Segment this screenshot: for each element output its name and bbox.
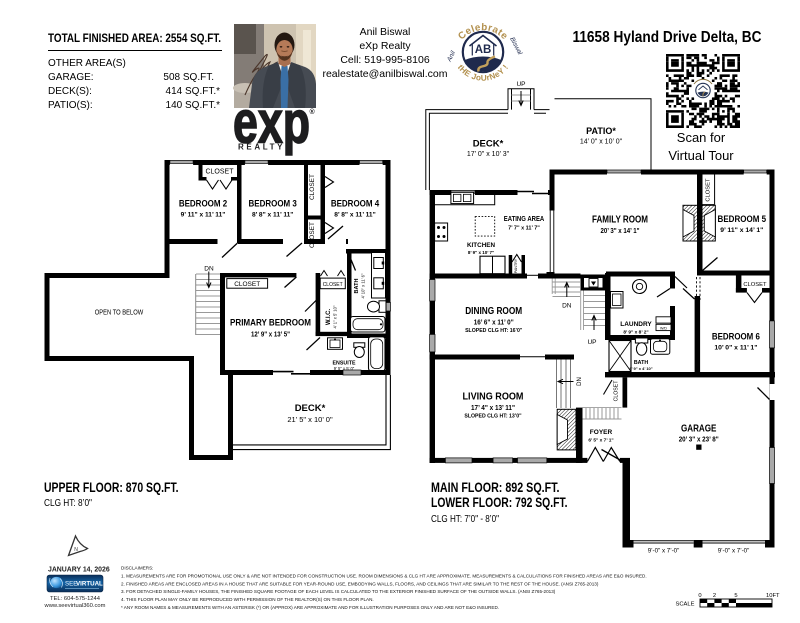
svg-text:9’-0" x 7’-0": 9’-0" x 7’-0" xyxy=(718,548,750,555)
svg-text:CLOSET: CLOSET xyxy=(309,222,316,248)
svg-text:UP: UP xyxy=(587,339,596,346)
svg-text:20’ 3" x 23’ 8": 20’ 3" x 23’ 8" xyxy=(679,435,719,444)
svg-text:12’ 9" x 13’ 5": 12’ 9" x 13’ 5" xyxy=(251,332,290,339)
svg-text:DECK*: DECK* xyxy=(295,403,326,414)
svg-text:9’ 11" x 14’ 1": 9’ 11" x 14’ 1" xyxy=(720,227,763,234)
svg-text:EATING AREA: EATING AREA xyxy=(504,214,545,223)
svg-text:17’ 0" x 10’ 3": 17’ 0" x 10’ 3" xyxy=(467,151,510,158)
svg-text:8’ 9" x 8’ 2": 8’ 9" x 8’ 2" xyxy=(623,330,648,336)
svg-text:140 SQ.FT.*: 140 SQ.FT.* xyxy=(166,100,221,111)
svg-text:4’ 1" x 5’ 10": 4’ 1" x 5’ 10" xyxy=(333,305,338,328)
svg-text:SCALE: SCALE xyxy=(675,602,694,608)
svg-text:16’ 6" x 11’ 0": 16’ 6" x 11’ 0" xyxy=(474,318,514,327)
svg-text:6’ 5" x 7’ 1": 6’ 5" x 7’ 1" xyxy=(588,438,613,444)
svg-text:DISCLAIMERS:: DISCLAIMERS: xyxy=(121,566,153,571)
svg-text:AB: AB xyxy=(475,44,492,56)
svg-text:9’ 11" x 11’ 11": 9’ 11" x 11’ 11" xyxy=(181,212,226,219)
svg-text:CLOSET: CLOSET xyxy=(706,178,712,202)
svg-text:CLOSET: CLOSET xyxy=(743,282,767,288)
svg-text:FAMILY ROOM: FAMILY ROOM xyxy=(592,214,648,226)
svg-text:GARAGE:: GARAGE: xyxy=(48,72,94,83)
svg-text:PATIO*: PATIO* xyxy=(586,126,616,136)
svg-text:414 SQ.FT.*: 414 SQ.FT.* xyxy=(166,86,221,97)
svg-text:DECK*: DECK* xyxy=(473,139,504,150)
svg-text:BEDROOM 3: BEDROOM 3 xyxy=(249,199,297,209)
svg-text:Anil Biswal: Anil Biswal xyxy=(360,26,411,38)
svg-text:BEDROOM 2: BEDROOM 2 xyxy=(179,199,227,209)
svg-text:SLOPED CLG HT: 16’0": SLOPED CLG HT: 16’0" xyxy=(465,328,523,334)
svg-text:BEDROOM 5: BEDROOM 5 xyxy=(718,214,767,224)
svg-text:PANTRY: PANTRY xyxy=(514,258,518,273)
svg-text:OTHER AREA(S): OTHER AREA(S) xyxy=(48,58,126,69)
svg-text:BEDROOM 4: BEDROOM 4 xyxy=(331,199,379,209)
svg-text:14’ 0" x 10’ 0": 14’ 0" x 10’ 0" xyxy=(580,139,623,146)
svg-text:BEDROOM 6: BEDROOM 6 xyxy=(712,332,760,342)
svg-text:LAUNDRY: LAUNDRY xyxy=(620,321,652,328)
svg-text:11658 Hyland Drive Delta, BC: 11658 Hyland Drive Delta, BC xyxy=(573,29,762,46)
svg-text:CLG HT: 7’0" - 8’0": CLG HT: 7’0" - 8’0" xyxy=(431,514,499,525)
svg-text:GARAGE: GARAGE xyxy=(681,423,717,435)
svg-text:20’ 3" x 14’ 1": 20’ 3" x 14’ 1" xyxy=(601,226,640,235)
svg-text:8’ 9" x 4’ 10": 8’ 9" x 4’ 10" xyxy=(629,366,652,371)
svg-text:DN: DN xyxy=(577,377,583,386)
svg-text:UP: UP xyxy=(516,81,525,88)
svg-text:7’ 7" x 11’ 7": 7’ 7" x 11’ 7" xyxy=(508,226,540,232)
svg-text:2: 2 xyxy=(713,593,716,599)
svg-text:MAIN FLOOR: 892 SQ.FT.: MAIN FLOOR: 892 SQ.FT. xyxy=(431,480,560,496)
svg-text:eXp Realty: eXp Realty xyxy=(359,40,411,52)
svg-text:CLOSET: CLOSET xyxy=(205,169,234,176)
svg-text:CLOSET: CLOSET xyxy=(614,380,620,402)
svg-text:10FT: 10FT xyxy=(766,593,780,599)
svg-text:10’ 0" x 11’ 1": 10’ 0" x 11’ 1" xyxy=(714,345,757,352)
svg-text:TEL: 604-575-1244: TEL: 604-575-1244 xyxy=(50,596,101,602)
svg-text:FOYER: FOYER xyxy=(590,429,613,436)
svg-text:0: 0 xyxy=(698,593,701,599)
svg-text:LIVING ROOM: LIVING ROOM xyxy=(463,391,524,403)
svg-text:OPEN TO BELOW: OPEN TO BELOW xyxy=(95,308,144,317)
svg-text:KITCHEN: KITCHEN xyxy=(467,242,495,249)
svg-text:8’ 8" x 11’ 11": 8’ 8" x 11’ 11" xyxy=(334,212,375,219)
svg-text:CLOSET: CLOSET xyxy=(309,174,316,200)
svg-text:508 SQ.FT.: 508 SQ.FT. xyxy=(163,72,214,83)
svg-text:www.seevirtual360.com: www.seevirtual360.com xyxy=(44,603,106,609)
svg-text:UPPER FLOOR: 870 SQ.FT.: UPPER FLOOR: 870 SQ.FT. xyxy=(44,480,179,496)
svg-text:SLOPED CLG HT: 13’0": SLOPED CLG HT: 13’0" xyxy=(464,414,522,420)
svg-text:W.I.C.: W.I.C. xyxy=(326,309,332,326)
svg-text:Virtual Tour: Virtual Tour xyxy=(668,148,734,163)
svg-text:21’ 5" x 10’ 0": 21’ 5" x 10’ 0" xyxy=(287,415,333,424)
svg-text:DECK(S):: DECK(S): xyxy=(48,86,92,97)
svg-text:PATIO(S):: PATIO(S): xyxy=(48,100,93,111)
svg-text:* ANY ROOM NAMES & MEASUREMENT: * ANY ROOM NAMES & MEASUREMENTS WITH AN … xyxy=(121,605,499,610)
svg-text:CLOSET: CLOSET xyxy=(323,282,344,288)
svg-text:2. FINISHED AREAS ARE ENCLOSED: 2. FINISHED AREAS ARE ENCLOSED AREAS IN … xyxy=(121,581,599,586)
svg-text:3. FOR DETACHED SINGLE-FAMILY: 3. FOR DETACHED SINGLE-FAMILY HOUSES, TH… xyxy=(121,589,556,594)
svg-text:Scan for: Scan for xyxy=(677,130,726,145)
svg-text:W/D: W/D xyxy=(660,327,667,331)
svg-text:5: 5 xyxy=(734,593,737,599)
svg-text:VIRTUAL: VIRTUAL xyxy=(76,581,103,588)
svg-text:4’ 10" x 11’ 6": 4’ 10" x 11’ 6" xyxy=(361,273,366,298)
svg-text:8’ 8" x 11’ 11": 8’ 8" x 11’ 11" xyxy=(252,212,293,219)
svg-text:LOWER FLOOR: 792 SQ.FT.: LOWER FLOOR: 792 SQ.FT. xyxy=(431,495,568,511)
svg-text:CLOSET: CLOSET xyxy=(234,281,260,288)
svg-text:8’ 9" x 10’ 7": 8’ 9" x 10’ 7" xyxy=(468,250,494,255)
svg-text:CLG HT: 8’0": CLG HT: 8’0" xyxy=(44,498,92,509)
svg-text:1. MEASUREMENTS ARE FOR PROMOT: 1. MEASUREMENTS ARE FOR PROMOTIONAL USE … xyxy=(121,573,647,578)
svg-text:DN: DN xyxy=(204,266,214,273)
svg-text:DN: DN xyxy=(562,303,572,310)
svg-text:TOTAL FINISHED AREA: 2554 SQ.: TOTAL FINISHED AREA: 2554 SQ.FT. xyxy=(48,31,221,45)
svg-text:N: N xyxy=(74,547,78,553)
svg-text:®: ® xyxy=(310,108,316,116)
svg-text:PRIMARY BEDROOM: PRIMARY BEDROOM xyxy=(230,318,311,328)
svg-text:realestate@anilbiswal.com: realestate@anilbiswal.com xyxy=(322,68,447,80)
svg-text:4. THIS FLOOR PLAN MAY ONLY BE: 4. THIS FLOOR PLAN MAY ONLY BE REPRODUCE… xyxy=(121,597,374,602)
svg-text:DINING ROOM: DINING ROOM xyxy=(465,305,522,317)
svg-text:BATH: BATH xyxy=(354,279,360,294)
svg-text:Cell: 519-995-8106: Cell: 519-995-8106 xyxy=(340,54,429,66)
svg-text:JANUARY 14, 2026: JANUARY 14, 2026 xyxy=(48,567,110,574)
svg-text:17’ 4" x 13’ 11": 17’ 4" x 13’ 11" xyxy=(471,403,515,412)
svg-text:9’-0" x 7’-0": 9’-0" x 7’-0" xyxy=(648,548,680,555)
